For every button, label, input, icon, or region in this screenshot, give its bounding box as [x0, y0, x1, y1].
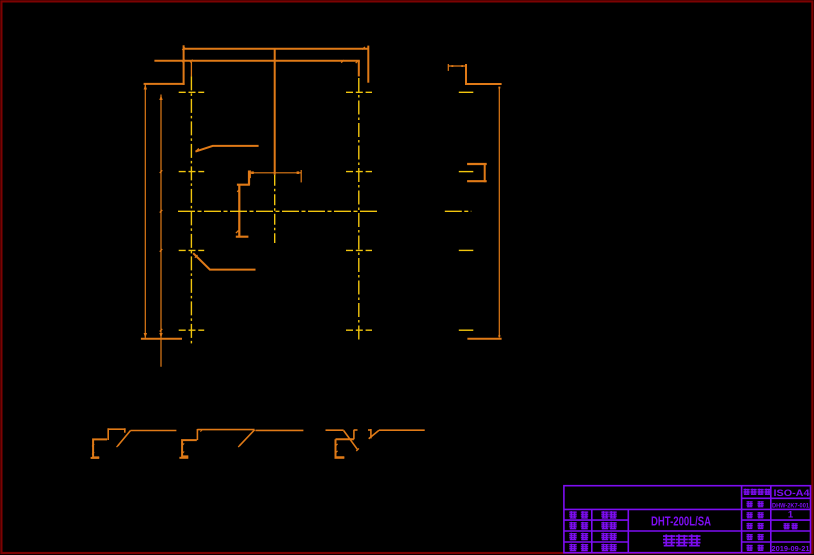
svg-text:2019-09-21: 2019-09-21 — [772, 544, 810, 553]
svg-text:DHW-2K7-001: DHW-2K7-001 — [772, 502, 809, 509]
svg-text:1: 1 — [788, 510, 794, 521]
svg-text:DHT-200L/SA: DHT-200L/SA — [651, 513, 711, 528]
svg-text:ISO-A4: ISO-A4 — [774, 488, 811, 499]
